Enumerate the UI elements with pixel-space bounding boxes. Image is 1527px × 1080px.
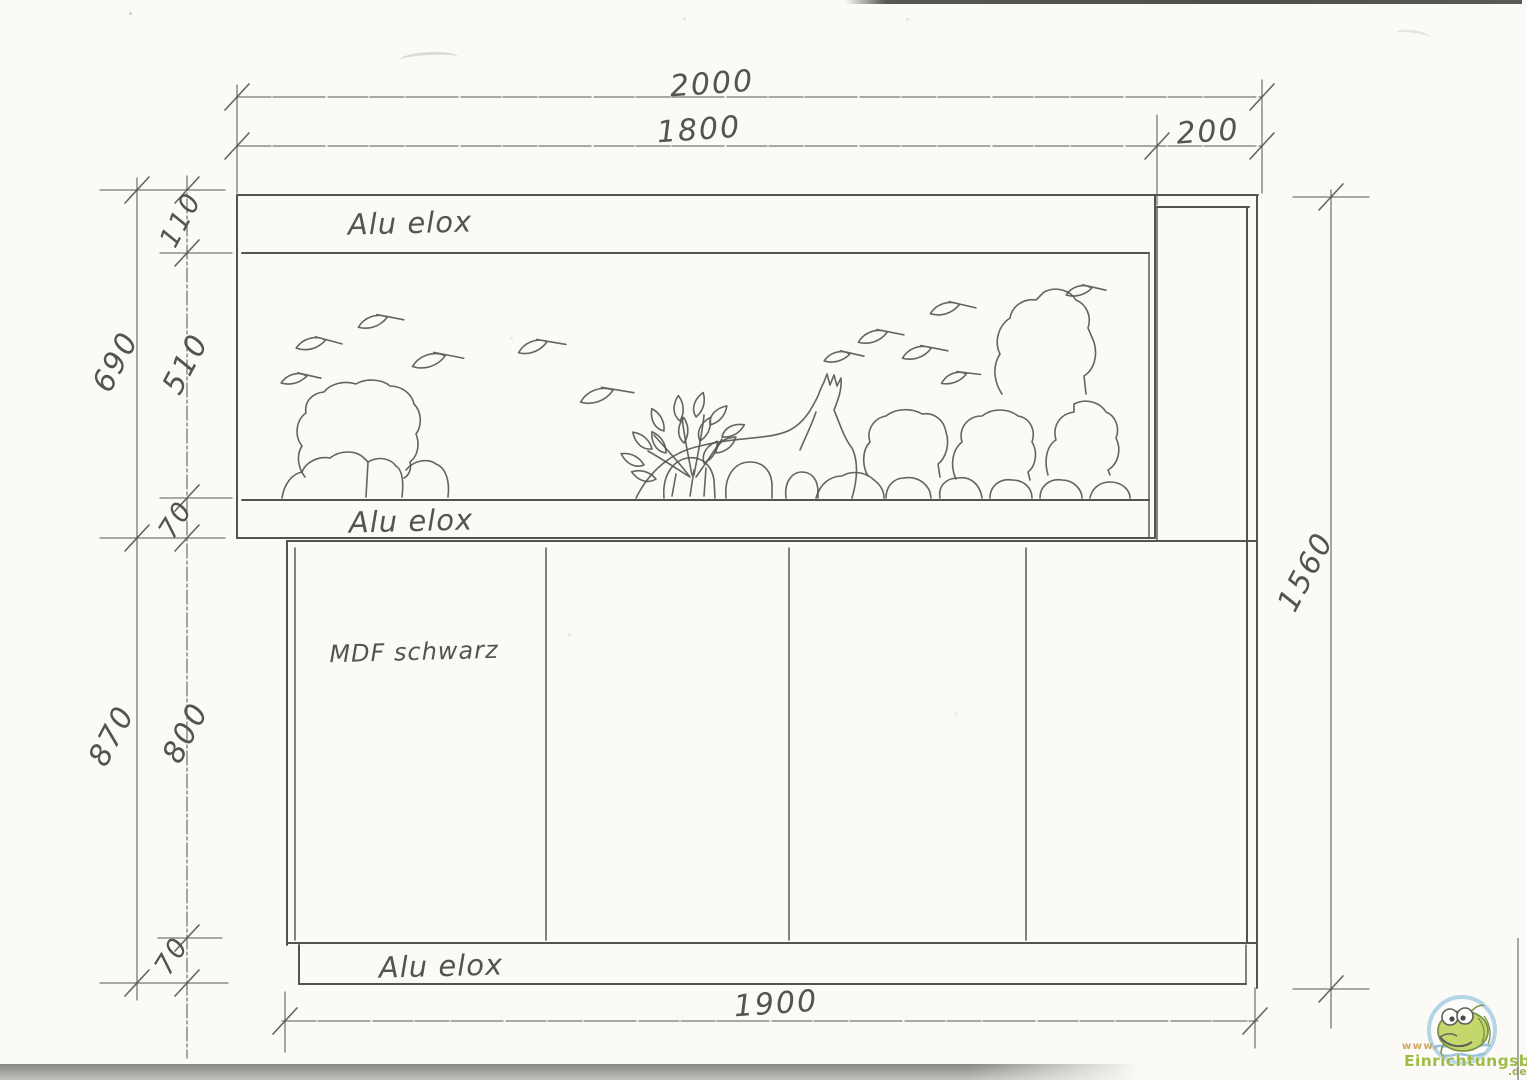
- scan-speck: [683, 17, 686, 20]
- watermark-www-text: www.: [1402, 1041, 1439, 1052]
- material-label-alu-top: Alu elox: [347, 204, 472, 241]
- dim-label-side-panel-width: 200: [1175, 112, 1241, 151]
- scan-speck: [568, 633, 571, 636]
- scan-edge-bottom-band: [0, 1064, 1140, 1080]
- material-label-alu-bottom: Alu elox: [378, 947, 503, 984]
- aquascape-sketch: [281, 283, 1130, 498]
- plant-sketch: [619, 392, 746, 482]
- rocks-right-sketch: [816, 289, 1130, 498]
- dim-label-tank-width: 1800: [656, 110, 743, 151]
- fish-school-left: [281, 311, 635, 405]
- scan-speck: [129, 12, 132, 15]
- driftwood-sketch: [636, 374, 857, 498]
- scan-edge-right-line: [1517, 938, 1519, 1080]
- dim-label-total-width: 2000: [669, 64, 756, 105]
- scan-speck: [510, 337, 513, 340]
- rock-left-sketch: [282, 380, 449, 498]
- tank-outline: [237, 195, 1258, 988]
- scan-speck: [955, 712, 958, 715]
- scan-speck: [906, 18, 909, 21]
- pencil-drawing: [0, 0, 1527, 1080]
- scan-edge-top-bar: [845, 0, 1522, 4]
- cabinet-outline: [287, 541, 1257, 984]
- material-label-mdf: MDF schwarz: [329, 636, 499, 668]
- dim-label-cabinet-width: 1900: [733, 984, 820, 1025]
- scanned-drawing-page: 2000 1800 200 110 690 510 70 870 800 70 …: [0, 0, 1527, 1080]
- material-label-alu-middle: Alu elox: [348, 502, 473, 539]
- fish-school-right: [824, 283, 1107, 385]
- dimension-lines-left: [100, 176, 232, 1058]
